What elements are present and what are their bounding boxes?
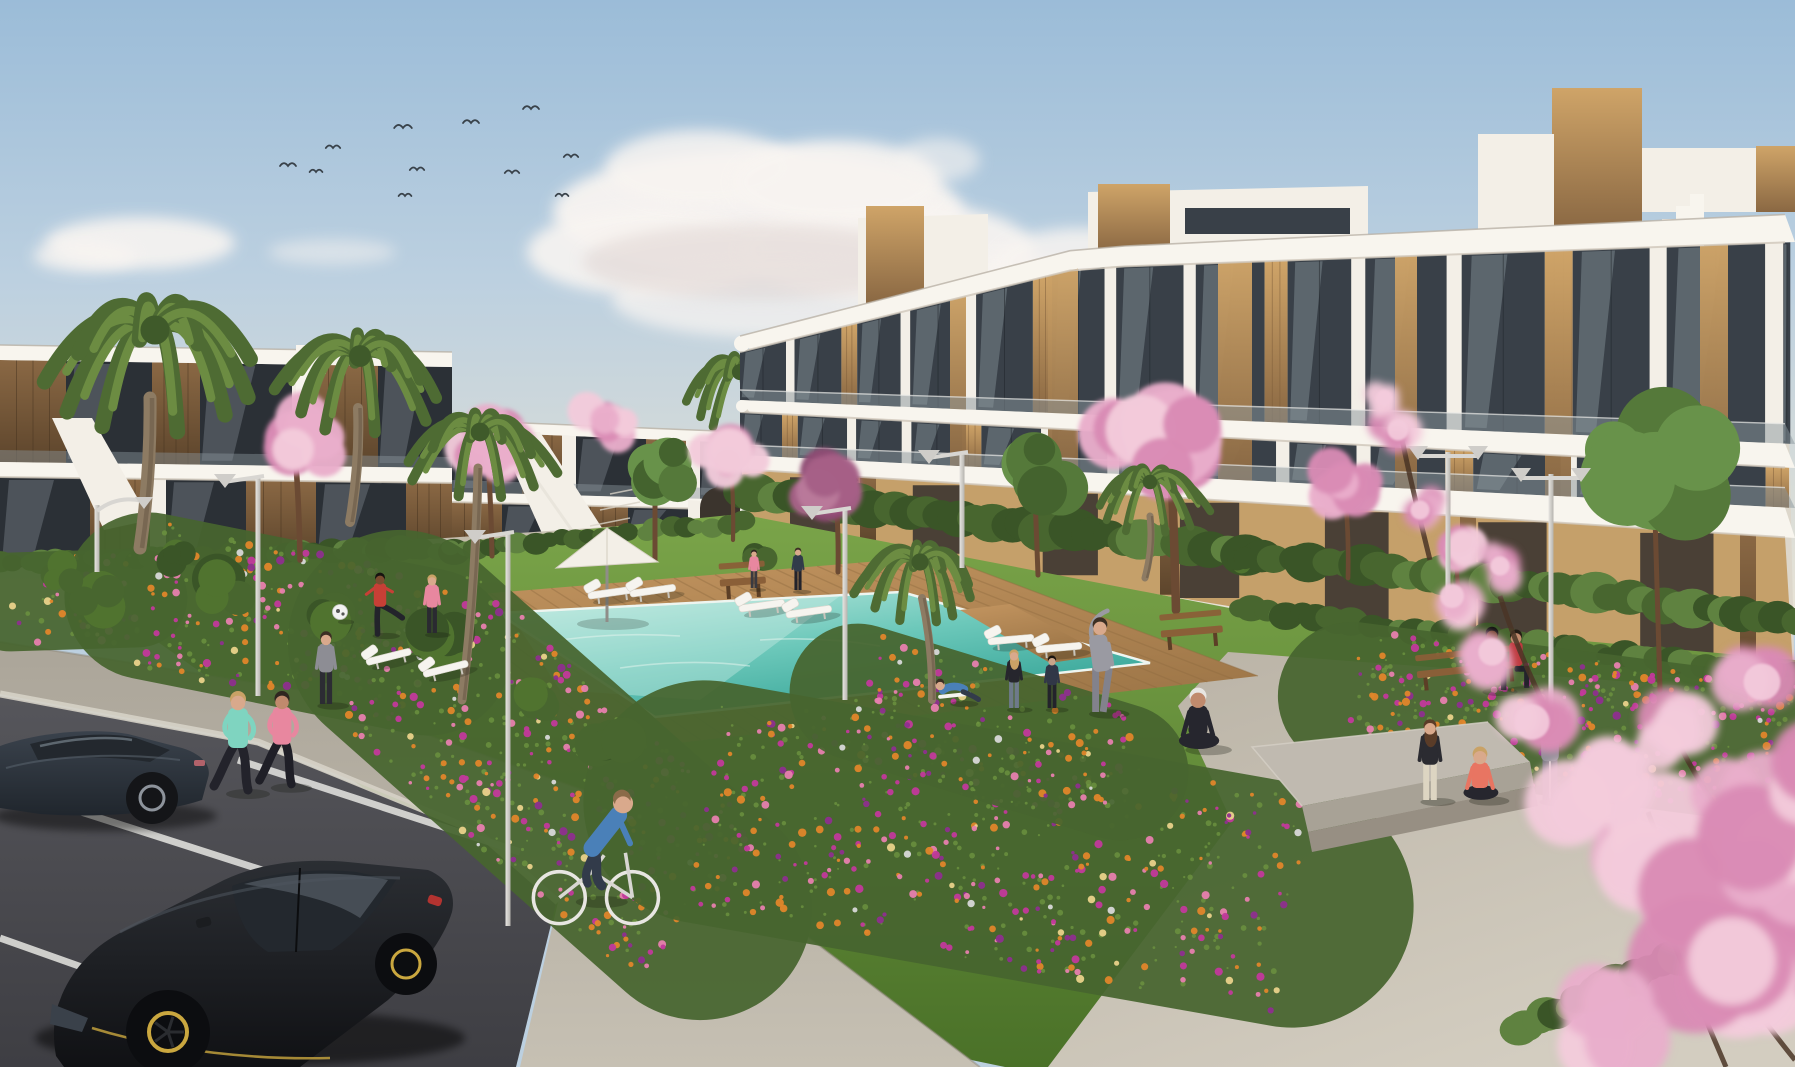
rendered-scene	[0, 0, 1795, 1067]
courtyard-render	[0, 0, 1795, 1067]
